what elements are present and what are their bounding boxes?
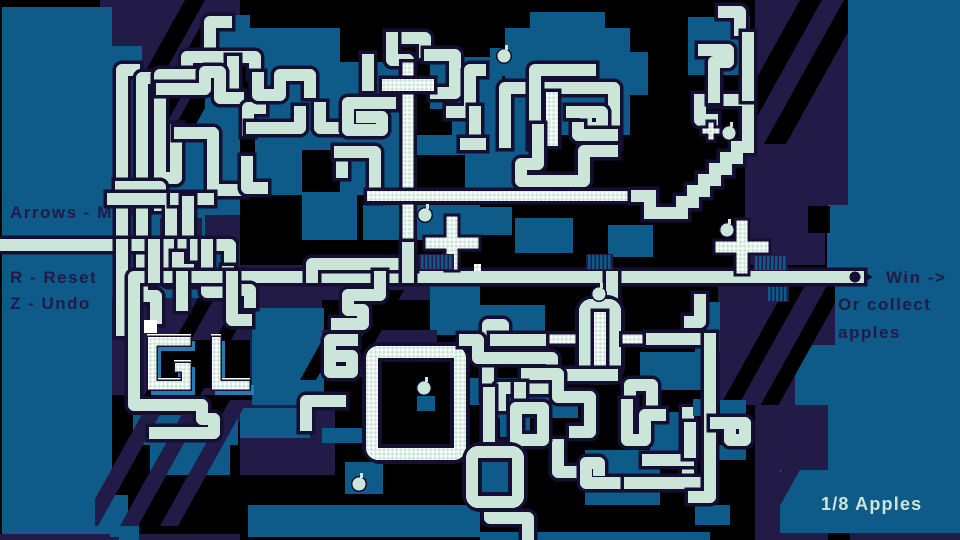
svg-text:apples: apples	[838, 323, 901, 342]
svg-text:Z - Undo: Z - Undo	[10, 294, 91, 313]
svg-text:Or collect: Or collect	[838, 295, 931, 314]
svg-text:Win ->: Win ->	[886, 268, 946, 287]
svg-text:1/8 Apples: 1/8 Apples	[821, 494, 922, 514]
svg-text:R - Reset: R - Reset	[10, 268, 97, 287]
